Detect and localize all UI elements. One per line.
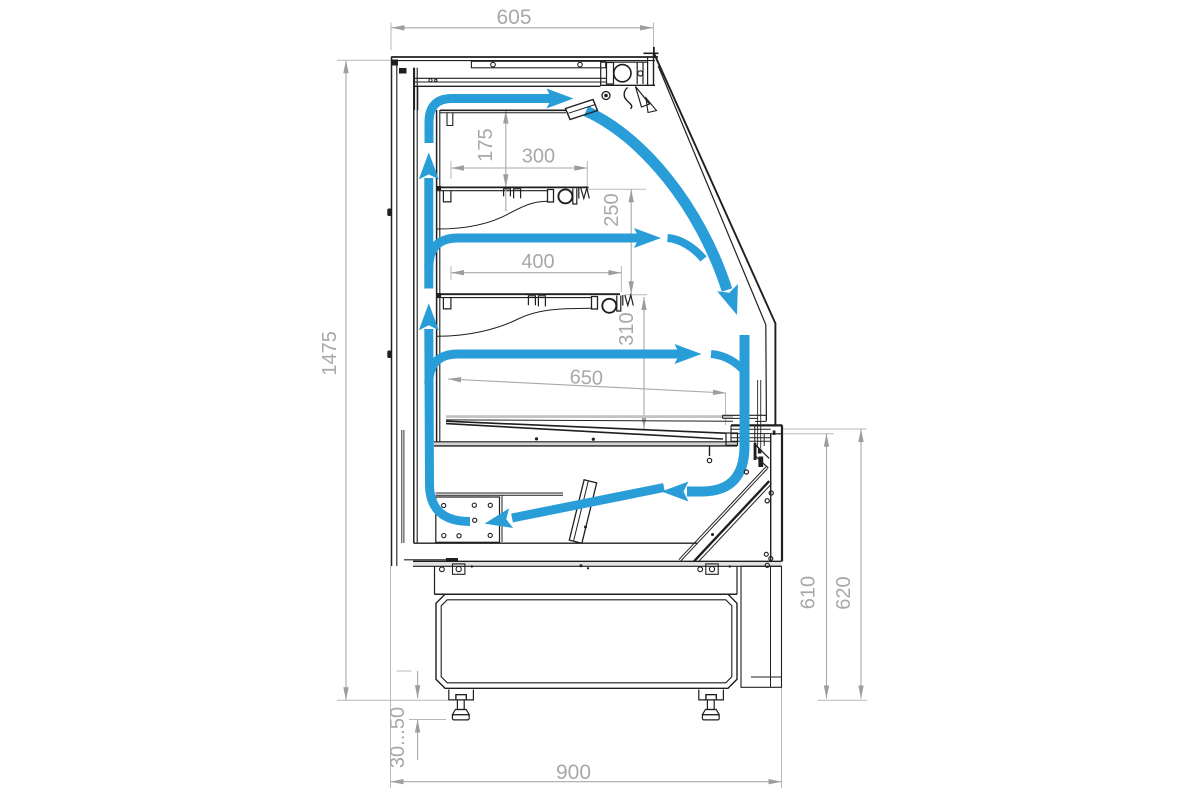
svg-text:1475: 1475: [319, 331, 341, 376]
svg-text:610: 610: [798, 576, 820, 609]
svg-text:30...50: 30...50: [387, 707, 409, 768]
svg-text:300: 300: [522, 146, 555, 168]
svg-text:650: 650: [569, 366, 603, 390]
svg-text:310: 310: [616, 312, 638, 345]
svg-text:250: 250: [601, 193, 623, 226]
svg-text:175: 175: [475, 128, 497, 161]
svg-text:605: 605: [496, 6, 531, 29]
svg-text:620: 620: [833, 576, 855, 609]
svg-text:900: 900: [556, 761, 591, 784]
svg-text:400: 400: [521, 251, 554, 273]
